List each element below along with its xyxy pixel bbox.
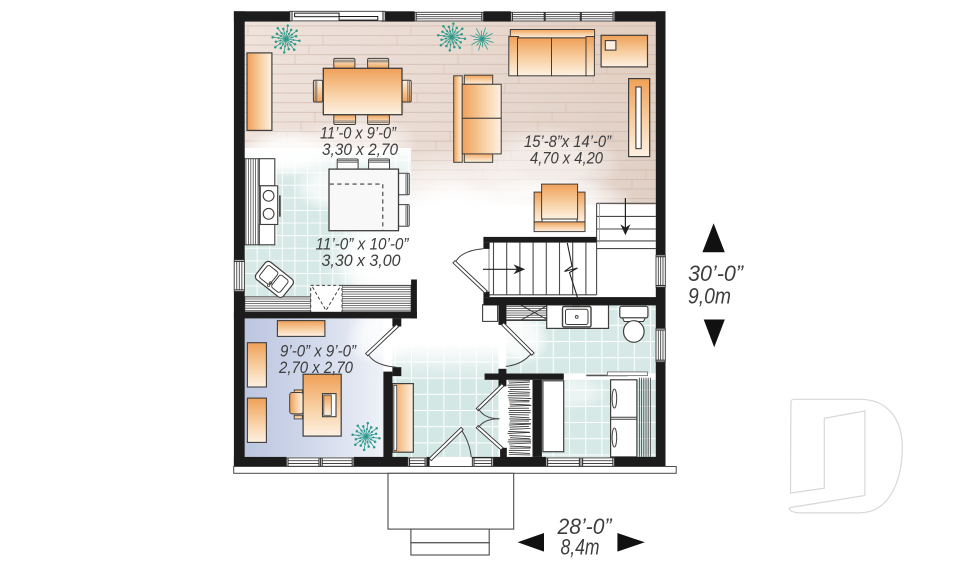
svg-text:4,70 x 4,20: 4,70 x 4,20: [530, 149, 603, 168]
svg-text:9,0m: 9,0m: [688, 284, 731, 309]
svg-text:30’-0”: 30’-0”: [688, 261, 744, 286]
svg-text:8,4m: 8,4m: [561, 535, 600, 560]
svg-text:3,30 x 3,00: 3,30 x 3,00: [322, 251, 402, 270]
svg-text:3,30 x 2,70: 3,30 x 2,70: [322, 140, 398, 159]
svg-text:2,70 x 2,70: 2,70 x 2,70: [278, 358, 353, 377]
